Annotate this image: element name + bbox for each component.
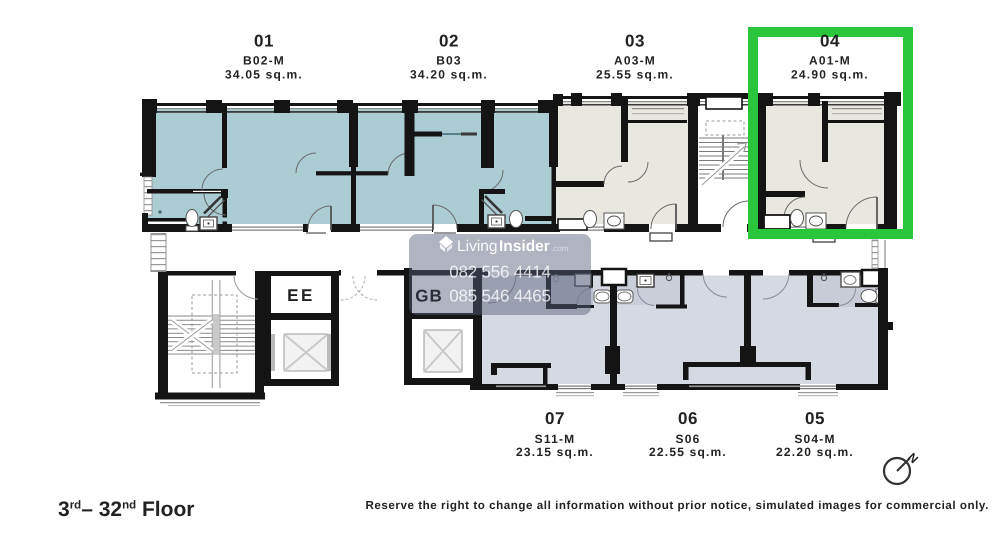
- svg-text:.com: .com: [551, 244, 569, 253]
- svg-text:22.20 sq.m.: 22.20 sq.m.: [776, 445, 854, 459]
- svg-text:34.20 sq.m.: 34.20 sq.m.: [410, 68, 488, 82]
- svg-text:B02-M: B02-M: [243, 54, 285, 68]
- svg-text:22.55 sq.m.: 22.55 sq.m.: [649, 445, 727, 459]
- svg-text:A03-M: A03-M: [614, 54, 656, 68]
- svg-text:B03: B03: [436, 54, 462, 68]
- svg-text:S04-M: S04-M: [794, 432, 835, 446]
- svg-text:06: 06: [678, 409, 698, 428]
- svg-text:EE: EE: [287, 286, 315, 305]
- svg-text:082 556 4414: 082 556 4414: [449, 263, 551, 282]
- svg-text:02: 02: [439, 32, 459, 51]
- svg-text:05: 05: [805, 409, 825, 428]
- svg-text:03: 03: [625, 32, 645, 51]
- svg-text:085 546 4465: 085 546 4465: [449, 287, 551, 306]
- svg-text:S11-M: S11-M: [535, 432, 576, 446]
- svg-text:34.05 sq.m.: 34.05 sq.m.: [225, 68, 303, 82]
- svg-text:01: 01: [254, 32, 274, 51]
- svg-text:04: 04: [820, 32, 840, 51]
- svg-text:GB: GB: [415, 287, 443, 306]
- svg-text:07: 07: [545, 409, 565, 428]
- svg-text:Insider: Insider: [499, 238, 550, 255]
- svg-text:23.15 sq.m.: 23.15 sq.m.: [516, 445, 594, 459]
- svg-text:Living: Living: [457, 238, 498, 255]
- svg-text:Reserve the right to change al: Reserve the right to change all informat…: [366, 499, 989, 512]
- svg-text:S06: S06: [676, 432, 701, 446]
- svg-text:A01-M: A01-M: [809, 54, 851, 68]
- svg-text:25.55 sq.m.: 25.55 sq.m.: [596, 68, 674, 82]
- svg-text:24.90 sq.m.: 24.90 sq.m.: [791, 68, 869, 82]
